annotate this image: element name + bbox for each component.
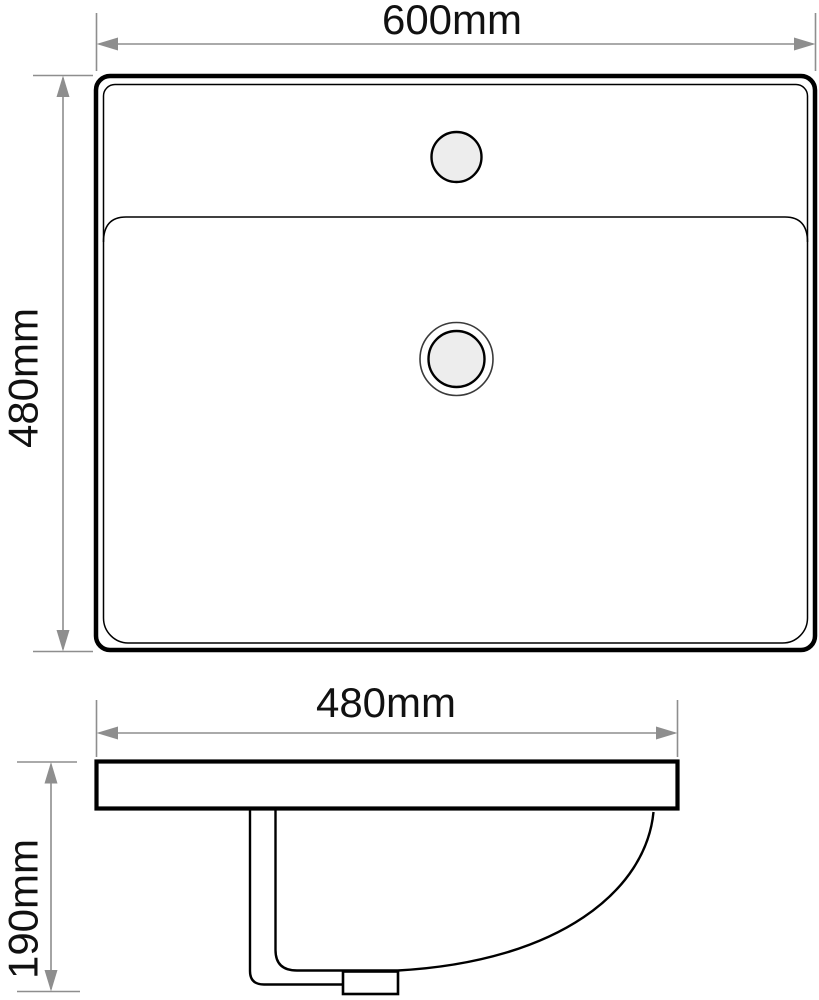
bowl-profile-curve	[276, 809, 654, 971]
drawing-svg: 600mm 480mm 48	[0, 0, 819, 1000]
arrow-up-icon	[57, 76, 70, 98]
side-view	[97, 762, 678, 995]
overall-width-label: 600mm	[382, 0, 522, 43]
arrow-right-icon	[656, 727, 678, 740]
faucet-hole	[432, 132, 482, 182]
height-label: 190mm	[0, 839, 47, 979]
drain-flange	[343, 972, 398, 995]
dimension-bowl-width: 480mm	[97, 679, 678, 757]
arrow-right-icon	[794, 38, 816, 51]
arrow-left-icon	[97, 727, 119, 740]
arrow-down-icon	[57, 630, 70, 652]
dimension-overall-width: 600mm	[97, 0, 816, 71]
top-view	[96, 76, 815, 650]
dimension-height: 190mm	[0, 762, 80, 992]
drain-hole-inner	[429, 331, 485, 387]
basin-technical-drawing: 600mm 480mm 48	[0, 0, 819, 1000]
arrow-up-icon	[45, 762, 58, 784]
dimension-overall-depth: 480mm	[0, 76, 93, 652]
side-view-rim	[97, 762, 678, 809]
front-wall-line	[250, 809, 343, 985]
bowl-width-label: 480mm	[316, 679, 456, 726]
overall-depth-label: 480mm	[0, 308, 47, 448]
arrow-left-icon	[97, 38, 119, 51]
